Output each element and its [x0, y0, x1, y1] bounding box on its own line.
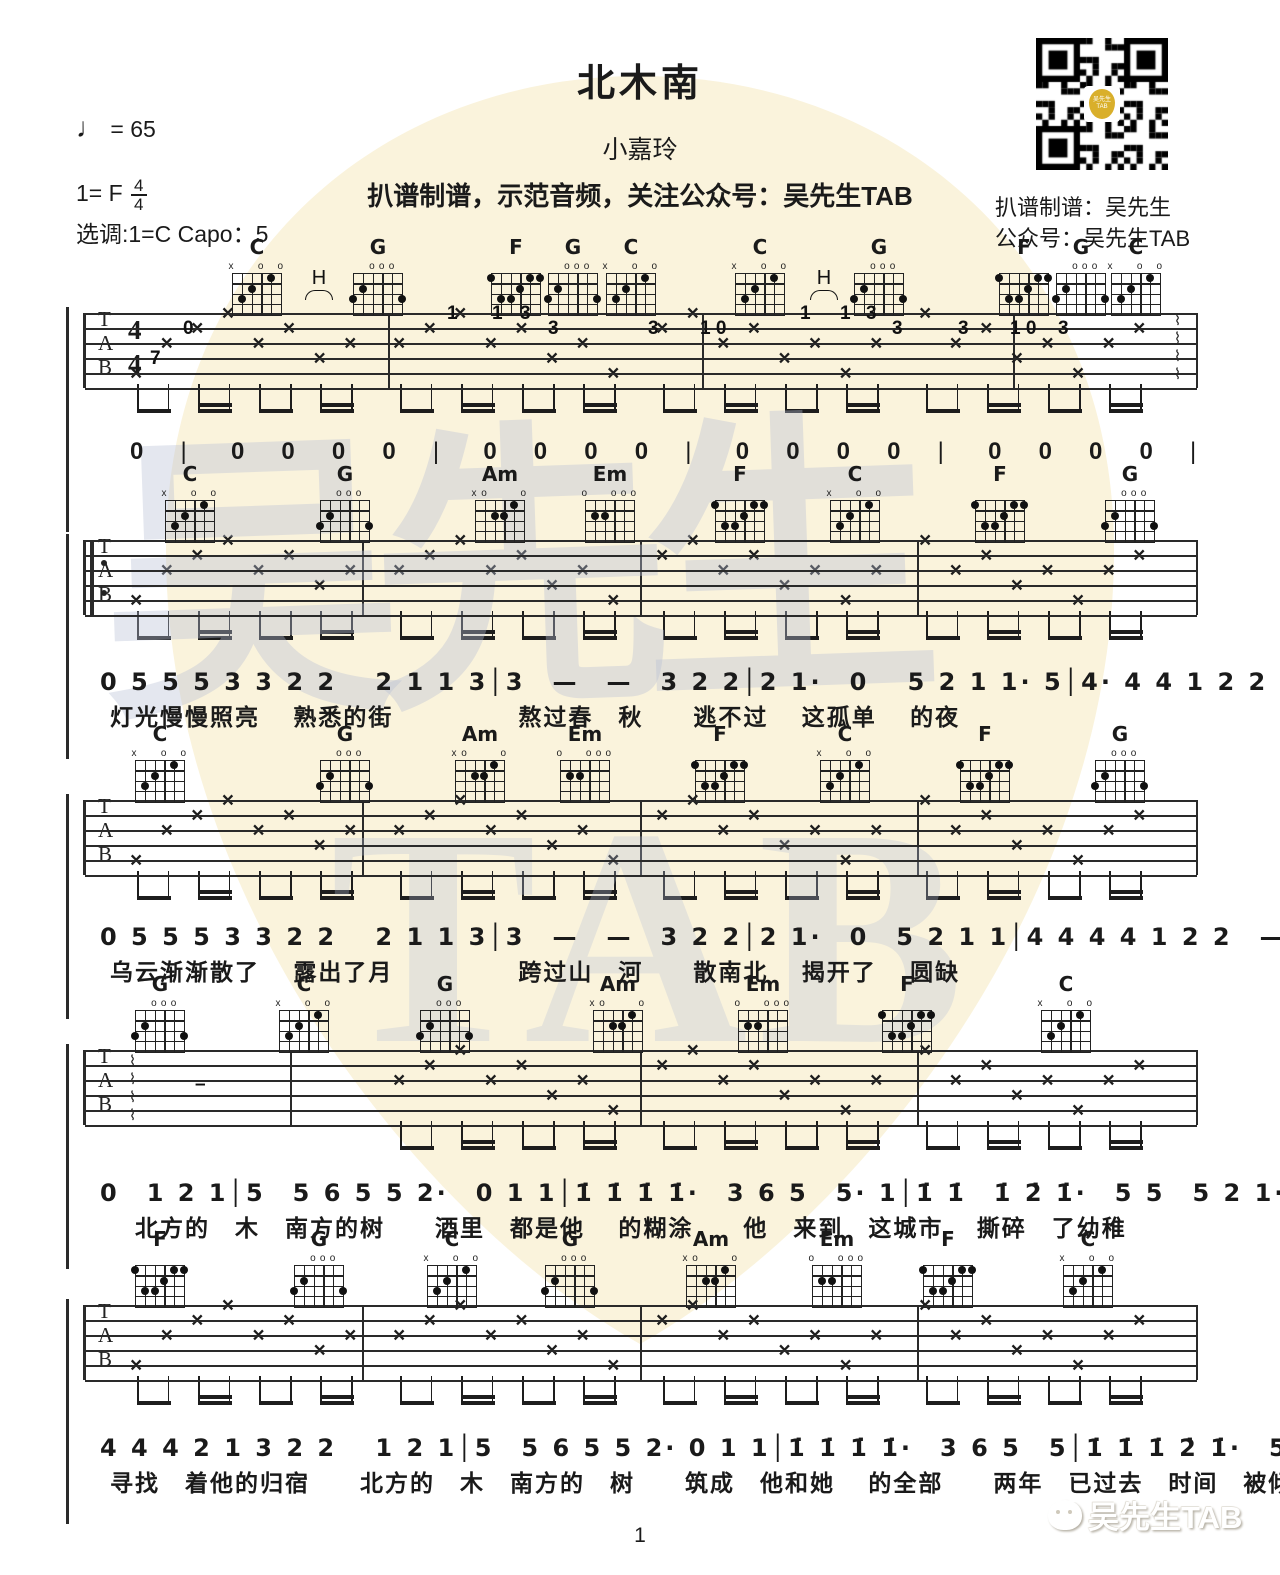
fret-line	[135, 802, 185, 803]
finger-dot	[171, 522, 179, 530]
fret-line	[1063, 1296, 1113, 1297]
finger-dot	[497, 295, 505, 303]
open-string-marker: o	[346, 748, 352, 759]
system-bracket	[66, 307, 69, 532]
finger-dot	[151, 1287, 159, 1295]
fret-line	[475, 510, 525, 511]
finger-dot	[601, 512, 609, 520]
finger-dot	[1101, 772, 1109, 780]
melody-zero: 0	[483, 438, 496, 466]
quarter-note-icon: ♩	[76, 112, 104, 143]
finger-dot	[919, 1266, 927, 1274]
finger-dot	[702, 1277, 710, 1285]
fret-line	[279, 1041, 329, 1042]
fret-line	[475, 542, 525, 543]
fret-line	[854, 294, 904, 295]
fret-line	[353, 315, 403, 316]
qr-caption-1: 扒谱制谱：吴先生	[995, 190, 1171, 222]
chord-diagram-F: F	[959, 722, 1011, 802]
fret-number: 3	[958, 318, 969, 340]
fret-line	[560, 802, 610, 803]
chord-name: C	[1110, 235, 1162, 259]
fret-line	[585, 542, 635, 543]
fret-line	[455, 791, 505, 792]
finger-dot	[544, 295, 552, 303]
open-string-marker: o	[586, 748, 592, 759]
chord-name: G	[853, 235, 905, 259]
finger-dot	[314, 1011, 322, 1019]
cat-ear	[1050, 1493, 1062, 1502]
chord-grid: oox	[232, 273, 282, 315]
staff-line	[85, 1065, 1197, 1067]
open-string-marker: o	[161, 748, 167, 759]
beam	[583, 1401, 617, 1405]
finger-dot	[939, 1287, 947, 1295]
fret-line	[420, 1052, 470, 1053]
open-string-marker: o	[735, 998, 741, 1009]
fret-line	[491, 283, 541, 284]
open-string-marker: o	[781, 261, 787, 272]
fret-line	[279, 1020, 329, 1021]
finger-dot	[1111, 512, 1119, 520]
chord-grid: oox	[593, 1010, 643, 1052]
finger-dot	[985, 772, 993, 780]
fret-line	[294, 1307, 344, 1308]
beam	[926, 409, 960, 413]
chord-name: G	[352, 235, 404, 259]
open-string-marker: o	[611, 488, 617, 499]
finger-dot	[1000, 512, 1008, 520]
finger-dot	[981, 522, 989, 530]
open-string-marker: o	[379, 261, 385, 272]
beam	[259, 1401, 293, 1405]
fret-line	[1111, 273, 1161, 274]
open-string-marker: o	[1157, 261, 1163, 272]
fret-line	[1105, 531, 1155, 532]
staff-line	[85, 815, 1197, 817]
fret-line	[1041, 1010, 1091, 1011]
open-string-marker: o	[211, 488, 217, 499]
open-string-marker: o	[336, 748, 342, 759]
beam	[1109, 636, 1143, 640]
finger-dot	[541, 1287, 549, 1295]
fret-line	[548, 304, 598, 305]
finger-dot	[326, 772, 334, 780]
staff-line	[85, 570, 1197, 572]
muted-string-marker: x	[1060, 1253, 1065, 1264]
staff-line	[85, 600, 1197, 602]
beam	[1109, 1395, 1143, 1399]
chord-grid	[882, 1010, 932, 1052]
fret-line	[427, 1296, 477, 1297]
staff-line	[85, 1110, 1197, 1112]
melody-zero: 0	[1089, 438, 1102, 466]
fret-line	[715, 542, 765, 543]
open-string-marker: o	[561, 1253, 567, 1264]
fret-line	[427, 1265, 477, 1266]
fret-line	[420, 1041, 470, 1042]
fret-line	[294, 1265, 344, 1266]
fret-line	[279, 1052, 329, 1053]
chord-diagram-C: Coox	[134, 722, 186, 802]
finger-dot	[1057, 1022, 1065, 1030]
beam	[846, 1140, 880, 1144]
beam	[987, 896, 1021, 900]
beam	[1048, 409, 1082, 413]
finger-dot	[576, 772, 584, 780]
open-string-marker: o	[774, 998, 780, 1009]
finger-dot	[836, 522, 844, 530]
beam	[259, 896, 293, 900]
fret-line	[475, 521, 525, 522]
staff-line	[85, 1365, 1197, 1367]
melody-zero: 0	[281, 438, 294, 466]
fret-line	[820, 760, 870, 761]
finger-dot	[426, 1022, 434, 1030]
open-string-marker: o	[456, 998, 462, 1009]
fret-line	[738, 1010, 788, 1011]
melody-zero: 0	[1140, 438, 1153, 466]
finger-dot	[316, 782, 324, 790]
fret-line	[1111, 283, 1161, 284]
open-string-marker: o	[320, 1253, 326, 1264]
beam	[1109, 1401, 1143, 1405]
staff-line	[85, 1095, 1197, 1097]
finger-dot	[1079, 1277, 1087, 1285]
fret-line	[455, 770, 505, 771]
fret-line	[960, 802, 1010, 803]
chord-grid	[135, 1265, 185, 1307]
finger-dot	[1117, 295, 1125, 303]
fret-line	[135, 1307, 185, 1308]
lyrics-line-1: 灯光慢慢照亮 熟悉的街 熬过春 秋 逃不过 这孤单 的夜	[110, 698, 1220, 732]
open-string-marker: o	[346, 488, 352, 499]
chord-name: G	[547, 235, 599, 259]
fret-number: 1	[840, 303, 851, 325]
fret-line	[1063, 1307, 1113, 1308]
open-string-marker: o	[582, 488, 588, 499]
key-signature: 1= F44	[76, 178, 147, 212]
open-string-marker: o	[1121, 488, 1127, 499]
chord-grid: ooo	[135, 1010, 185, 1052]
finger-dot	[966, 782, 974, 790]
chord-grid: ooo	[320, 760, 370, 802]
melody-zero: 0	[736, 438, 749, 466]
beam	[724, 1401, 758, 1405]
beam	[320, 1401, 354, 1405]
fret-line	[545, 1286, 595, 1287]
beam	[987, 409, 1021, 413]
fret-line	[593, 1041, 643, 1042]
open-string-marker: o	[631, 488, 637, 499]
open-string-marker: o	[856, 488, 862, 499]
finger-dot	[290, 1287, 298, 1295]
finger-dot	[731, 522, 739, 530]
open-string-marker: o	[389, 261, 395, 272]
fret-line	[854, 304, 904, 305]
fret-line	[560, 760, 610, 761]
finger-dot	[591, 512, 599, 520]
finger-dot	[1047, 1032, 1055, 1040]
barline-mark: |	[180, 438, 186, 466]
open-string-marker: o	[1131, 488, 1137, 499]
finger-dot	[238, 295, 246, 303]
hammer-on-mark: H	[810, 267, 838, 300]
open-string-marker: o	[336, 488, 342, 499]
open-string-marker: o	[181, 748, 187, 759]
chord-grid: ooo	[1105, 500, 1155, 542]
beam	[987, 1140, 1021, 1144]
fret-line	[1095, 802, 1145, 803]
beam	[724, 1140, 758, 1144]
muted-string-marker: x	[683, 1253, 688, 1264]
cat-ear	[1068, 1493, 1080, 1502]
chord-grid: oox	[427, 1265, 477, 1307]
chord-diagram-F: F	[714, 462, 766, 542]
staff-line	[85, 615, 1197, 617]
open-string-marker: o	[866, 748, 872, 759]
fret-number: 3	[648, 318, 659, 340]
chord-grid: ooo	[420, 1010, 470, 1052]
fret-line	[491, 273, 541, 274]
chord-grid	[923, 1265, 973, 1307]
tab-staff-3	[85, 800, 1197, 875]
open-string-marker: o	[1111, 748, 1117, 759]
finger-dot	[349, 295, 357, 303]
finger-dot	[711, 782, 719, 790]
fret-line	[695, 791, 745, 792]
beam	[522, 1146, 556, 1150]
finger-dot	[359, 285, 367, 293]
finger-dot	[898, 1032, 906, 1040]
open-string-marker: o	[574, 261, 580, 272]
chord-grid	[975, 500, 1025, 542]
finger-dot	[500, 512, 508, 520]
beam	[1109, 1140, 1143, 1144]
open-string-marker: o	[171, 998, 177, 1009]
fret-line	[232, 304, 282, 305]
chord-grid	[999, 273, 1049, 315]
finger-dot	[295, 1022, 303, 1030]
beam	[1109, 409, 1143, 413]
tab-staff-4	[85, 1050, 1197, 1125]
time-signature: 44	[131, 178, 147, 212]
finger-dot	[170, 761, 178, 769]
beam	[461, 1146, 495, 1150]
open-string-marker: o	[356, 488, 362, 499]
beam	[137, 896, 171, 900]
chord-grid: oox	[606, 273, 656, 315]
fret-line	[353, 273, 403, 274]
chord-grid: ooo	[320, 500, 370, 542]
chord-grid: oooo	[560, 760, 610, 802]
chord-diagram-F: F	[974, 462, 1026, 542]
fret-line	[882, 1020, 932, 1021]
chord-diagram-Em: Emoooo	[559, 722, 611, 802]
fret-line	[320, 760, 370, 761]
fret-line	[686, 1296, 736, 1297]
fret-line	[923, 1275, 973, 1276]
fret-number: 1 0	[700, 318, 726, 340]
jianpu-numbers-line-4: 4 4 4 2 1 3 2 2 1 2 1│5 5 6 5 5 2· 0 1 1…	[100, 1428, 1210, 1463]
open-string-marker: o	[1067, 998, 1073, 1009]
fret-line	[695, 760, 745, 761]
beam	[198, 1395, 232, 1399]
beam	[583, 1140, 617, 1144]
fret-line	[232, 315, 282, 316]
fret-line	[545, 1265, 595, 1266]
beam	[785, 1146, 819, 1150]
chord-grid: ooo	[548, 273, 598, 315]
fret-line	[695, 770, 745, 771]
finger-dot	[551, 1277, 559, 1285]
chord-diagram-G: Gooo	[352, 235, 404, 315]
fret-line	[427, 1275, 477, 1276]
open-string-marker: o	[325, 998, 331, 1009]
fret-line	[686, 1265, 736, 1266]
beam	[663, 1146, 697, 1150]
fret-line	[975, 500, 1025, 501]
beam	[461, 1140, 495, 1144]
open-string-marker: o	[1131, 748, 1137, 759]
finger-dot	[1098, 1266, 1106, 1274]
finger-dot	[878, 1011, 886, 1019]
finger-dot	[609, 1022, 617, 1030]
open-string-marker: o	[1072, 261, 1078, 272]
fret-line	[830, 531, 880, 532]
fret-line	[923, 1307, 973, 1308]
fret-line	[455, 781, 505, 782]
finger-dot	[850, 295, 858, 303]
beam	[663, 1401, 697, 1405]
staff-line	[85, 860, 1197, 862]
fret-line	[606, 315, 656, 316]
open-string-marker: o	[846, 748, 852, 759]
fret-line	[820, 791, 870, 792]
chord-diagram-Am: Amoox	[474, 462, 526, 542]
footer-logo: 吴先生TAB	[1048, 1492, 1242, 1537]
melody-zero: 0	[382, 438, 395, 466]
open-string-marker: o	[564, 261, 570, 272]
open-string-marker: o	[1109, 1253, 1115, 1264]
tab-staff-5	[85, 1305, 1197, 1380]
muted-string-marker: x	[603, 261, 608, 272]
muted-string-marker: x	[276, 998, 281, 1009]
chord-diagram-G: Gooo	[547, 235, 599, 315]
finger-dot	[770, 274, 778, 282]
fret-line	[1095, 781, 1145, 782]
finger-dot	[1101, 522, 1109, 530]
fret-line	[1111, 304, 1161, 305]
fret-line	[593, 1010, 643, 1011]
finger-dot	[131, 1266, 139, 1274]
lyrics-line-2: 乌云渐渐散了 露出了月 跨过山 河 散南北 揭开了 圆缺	[110, 953, 1220, 987]
fret-line	[999, 283, 1049, 284]
muted-string-marker: x	[827, 488, 832, 499]
finger-dot	[1052, 295, 1060, 303]
finger-dot	[248, 285, 256, 293]
beam	[1109, 1146, 1143, 1150]
chord-name: G	[1055, 235, 1107, 259]
fret-line	[1063, 1275, 1113, 1276]
fret-line	[1063, 1265, 1113, 1266]
beam	[1048, 636, 1082, 640]
fret-line	[420, 1031, 470, 1032]
fret-line	[294, 1296, 344, 1297]
open-string-marker: o	[161, 998, 167, 1009]
system-bracket	[66, 534, 69, 759]
finger-dot	[855, 761, 863, 769]
finger-dot	[750, 501, 758, 509]
open-string-marker: o	[761, 261, 767, 272]
finger-dot	[691, 761, 699, 769]
melody-zero: 0	[786, 438, 799, 466]
chord-name: C	[231, 235, 283, 259]
beam	[1109, 630, 1143, 634]
finger-dot	[1010, 501, 1018, 509]
fret-number: 1	[492, 303, 503, 325]
fret-line	[548, 315, 598, 316]
beam	[926, 636, 960, 640]
open-string-marker: o	[876, 488, 882, 499]
staff-line	[85, 1305, 1197, 1307]
fret-line	[854, 273, 904, 274]
finger-dot	[566, 772, 574, 780]
finger-dot	[1015, 295, 1023, 303]
muted-string-marker: x	[132, 748, 137, 759]
fret-line	[548, 294, 598, 295]
finger-dot	[1146, 274, 1154, 282]
hammer-on-mark: H	[305, 267, 333, 300]
chord-grid: ooo	[1095, 760, 1145, 802]
open-string-marker: o	[258, 261, 264, 272]
open-string-marker: o	[809, 1253, 815, 1264]
finger-dot	[741, 295, 749, 303]
system-bracket	[66, 1299, 69, 1524]
finger-dot	[622, 285, 630, 293]
staff-line	[85, 540, 1197, 542]
chord-diagram-Em: Emoooo	[584, 462, 636, 542]
fret-line	[686, 1307, 736, 1308]
open-string-marker: o	[1089, 1253, 1095, 1264]
muted-string-marker: x	[1038, 998, 1043, 1009]
chord-grid: ooo	[545, 1265, 595, 1307]
finger-dot	[976, 782, 984, 790]
staff-line	[85, 845, 1197, 847]
hammer-arc	[810, 290, 838, 300]
open-string-marker: o	[838, 1253, 844, 1264]
fret-number: 3	[892, 318, 903, 340]
beam	[583, 1395, 617, 1399]
finger-dot	[1034, 274, 1042, 282]
muted-string-marker: x	[472, 488, 477, 499]
chord-grid: oox	[279, 1010, 329, 1052]
open-string-marker: o	[557, 748, 563, 759]
fret-line	[135, 1041, 185, 1042]
hammer-arc	[305, 290, 333, 300]
chord-grid: oox	[830, 500, 880, 542]
fret-line	[135, 1275, 185, 1276]
finger-dot	[487, 274, 495, 282]
finger-dot	[818, 1277, 826, 1285]
chord-diagram-G: Gooo	[1104, 462, 1156, 542]
jianpu-numbers-line-2: 0 5 5 5 3 3 2 2 2 1 1 3│3 — — 3 2 2│2 1·…	[100, 917, 1210, 952]
finger-dot	[751, 285, 759, 293]
fret-line	[882, 1010, 932, 1011]
chord-grid: ooo	[353, 273, 403, 315]
beam	[198, 896, 232, 900]
fret-line	[320, 531, 370, 532]
